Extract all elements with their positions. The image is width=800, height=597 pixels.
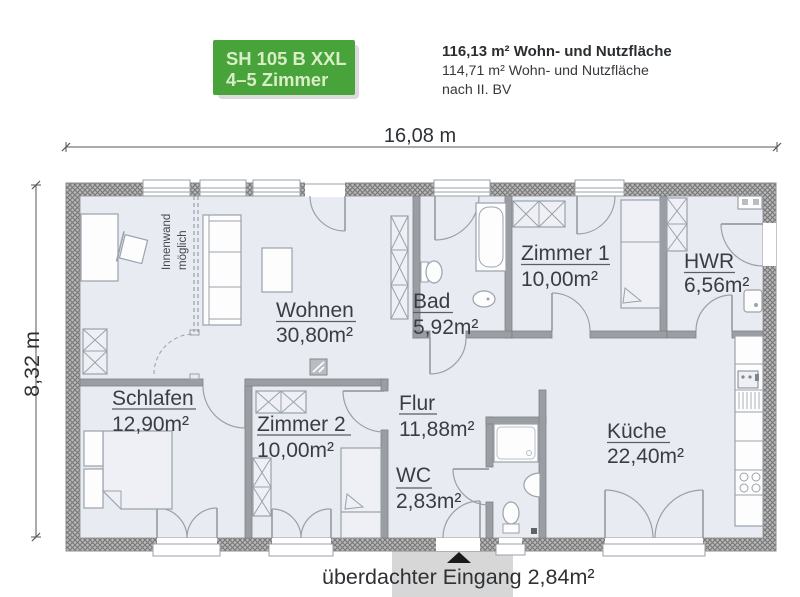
svg-text:Zimmer 1: Zimmer 1 — [521, 242, 610, 265]
svg-text:SH 105 B XXL: SH 105 B XXL — [226, 48, 347, 69]
svg-text:11,88m²: 11,88m² — [399, 418, 474, 441]
svg-text:2,83m²: 2,83m² — [396, 490, 461, 513]
svg-text:Innenwand: Innenwand — [161, 214, 173, 270]
svg-text:5,92m²: 5,92m² — [413, 316, 478, 339]
svg-text:30,80m²: 30,80m² — [276, 324, 353, 347]
svg-text:8,32 m: 8,32 m — [20, 331, 44, 397]
svg-text:Bad: Bad — [413, 290, 450, 313]
svg-text:4–5 Zimmer: 4–5 Zimmer — [226, 69, 328, 90]
svg-text:22,40m²: 22,40m² — [607, 445, 684, 468]
svg-text:Flur: Flur — [399, 392, 435, 415]
svg-text:12,90m²: 12,90m² — [112, 413, 189, 436]
svg-text:10,00m²: 10,00m² — [521, 268, 598, 291]
svg-text:überdachter Eingang 2,84m²: überdachter Eingang 2,84m² — [322, 565, 595, 589]
svg-text:Wohnen: Wohnen — [276, 299, 354, 322]
svg-text:Schlafen: Schlafen — [112, 387, 194, 410]
svg-text:nach II. BV: nach II. BV — [442, 82, 512, 98]
svg-text:16,08 m: 16,08 m — [384, 125, 456, 147]
svg-text:114,71 m² Wohn- und Nutzfläche: 114,71 m² Wohn- und Nutzfläche — [442, 63, 649, 79]
svg-text:WC: WC — [396, 464, 431, 487]
svg-text:Zimmer 2: Zimmer 2 — [257, 413, 346, 436]
svg-text:6,56m²: 6,56m² — [684, 274, 749, 297]
svg-text:116,13 m² Wohn- und Nutzfläche: 116,13 m² Wohn- und Nutzfläche — [442, 43, 672, 60]
svg-text:10,00m²: 10,00m² — [257, 439, 334, 462]
svg-text:Küche: Küche — [607, 420, 667, 443]
svg-text:möglich: möglich — [177, 230, 189, 270]
svg-text:HWR: HWR — [684, 250, 734, 273]
